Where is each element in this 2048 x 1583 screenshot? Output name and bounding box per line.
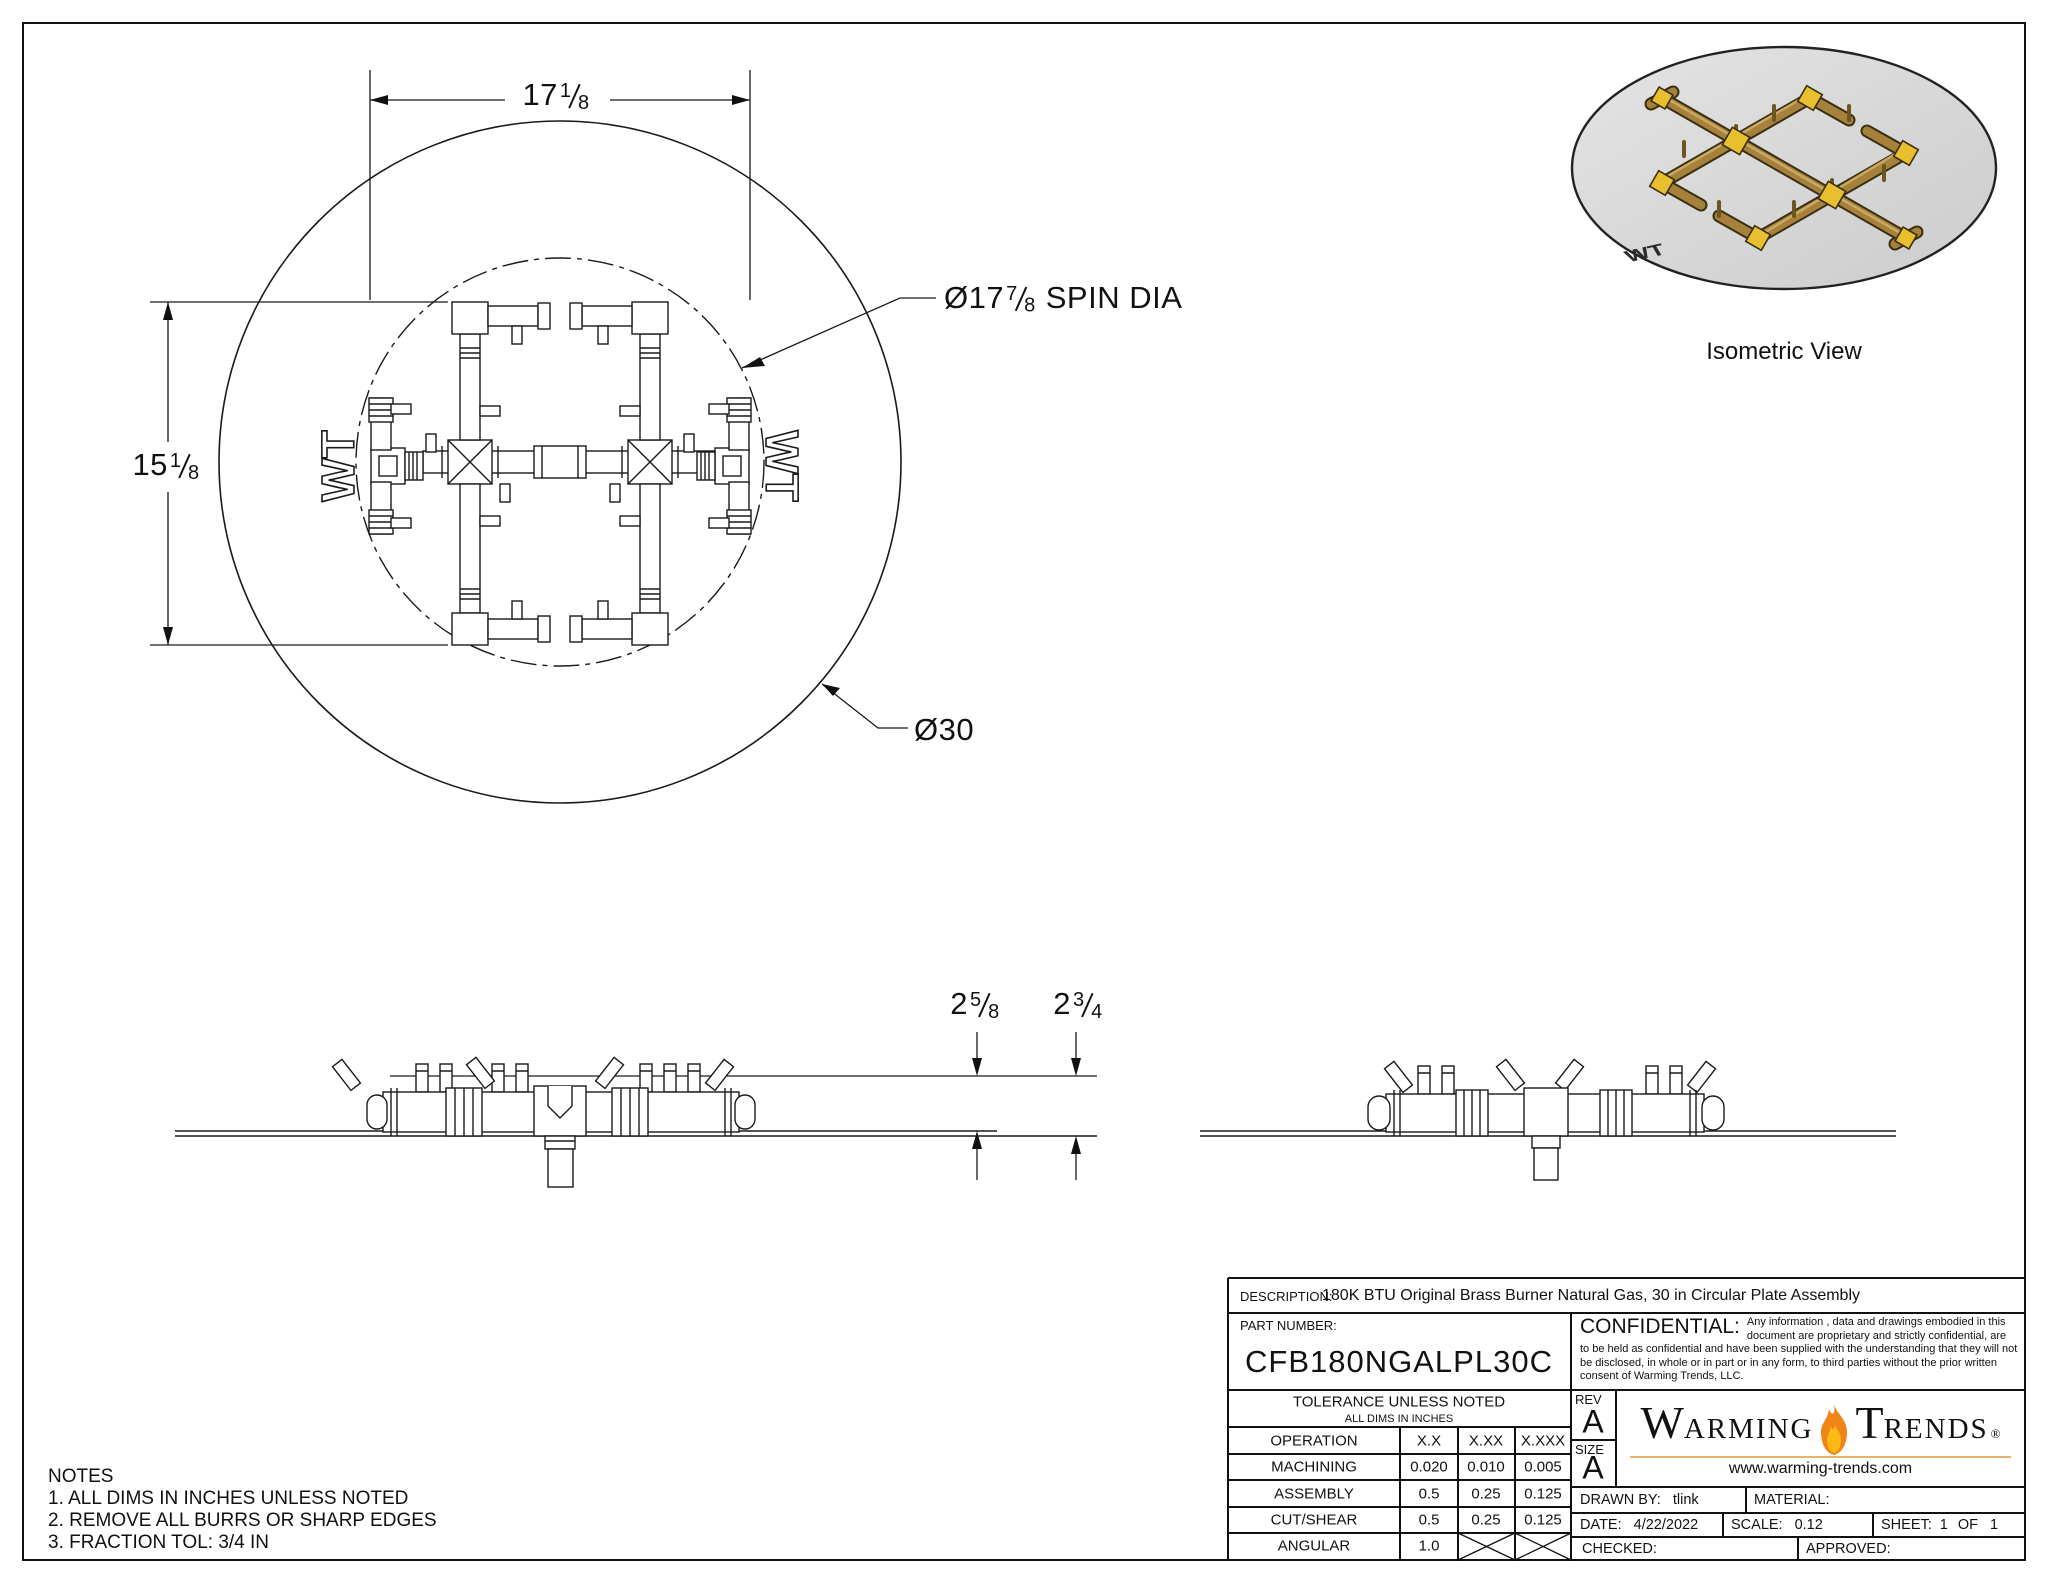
tol-cell: 0.25	[1471, 1512, 1500, 1529]
date-field: DATE:4/22/2022	[1580, 1517, 1698, 1533]
tol-cell: 0.125	[1524, 1512, 1562, 1529]
tol-cell: 1.0	[1419, 1538, 1440, 1555]
tol-cell: CUT/SHEAR	[1271, 1512, 1358, 1529]
tol-col-header: OPERATION	[1270, 1433, 1357, 1450]
confidential-label: CONFIDENTIAL:	[1580, 1316, 1740, 1338]
side-view-front	[175, 1057, 1097, 1187]
dim-width-label: 1718	[522, 77, 589, 115]
note-line: 3. FRACTION TOL: 3/4 IN	[48, 1532, 437, 1554]
burner-plan	[369, 302, 751, 645]
brand-underline	[1630, 1456, 2011, 1458]
rev-value: A	[1582, 1404, 1603, 1441]
tolerance-subtitle: ALL DIMS IN INCHES	[1345, 1413, 1453, 1425]
tol-cell: MACHINING	[1271, 1459, 1357, 1476]
part-number-value: CFB180NGALPL30C	[1245, 1344, 1553, 1380]
dim-overall-height-label: 234	[1053, 986, 1102, 1024]
drawn-by-field: DRAWN BY:tlink	[1580, 1492, 1699, 1508]
part-number-label: PART NUMBER:	[1240, 1318, 1337, 1333]
registered-mark: ®	[1991, 1426, 2001, 1442]
wt-monogram-right: WT	[756, 430, 808, 502]
confidential-box: CONFIDENTIAL: Any information , data and…	[1580, 1316, 2018, 1386]
tol-cell: 0.5	[1419, 1486, 1440, 1503]
tol-cell: 0.5	[1419, 1512, 1440, 1529]
description-label: DESCRIPTION:	[1240, 1289, 1332, 1304]
brand-logo: WARMING TRENDS ® www.warming-trends.com	[1618, 1392, 2023, 1485]
tol-col-header: X.X	[1417, 1433, 1441, 1450]
spin-dia-label: Ø1778SPIN DIA	[944, 280, 1182, 318]
description-value: 180K BTU Original Brass Burner Natural G…	[1322, 1287, 1860, 1305]
note-line: 1. ALL DIMS IN INCHES UNLESS NOTED	[48, 1488, 437, 1510]
checked-field: CHECKED:	[1582, 1541, 1669, 1557]
side-views	[175, 1032, 1896, 1187]
tol-cell: ASSEMBLY	[1274, 1486, 1354, 1503]
drawing-sheet: WT WT	[0, 0, 2048, 1583]
tolerance-title: TOLERANCE UNLESS NOTED	[1293, 1394, 1505, 1411]
plan-view: WT WT	[150, 70, 936, 803]
brand-website: www.warming-trends.com	[1618, 1460, 2023, 1478]
size-value: A	[1582, 1450, 1603, 1487]
notes-block: NOTES 1. ALL DIMS IN INCHES UNLESS NOTED…	[48, 1466, 437, 1554]
side-view-side	[1200, 1059, 1896, 1180]
tol-col-header: X.XX	[1469, 1433, 1503, 1450]
leader-plate-dia	[822, 684, 908, 728]
tol-cell: 0.010	[1467, 1459, 1505, 1476]
leader-spin-dia	[742, 298, 936, 368]
isometric-view: WT	[1572, 47, 1996, 289]
sheet-field: SHEET:1OF1	[1881, 1517, 1998, 1533]
tol-cell: 0.020	[1410, 1459, 1448, 1476]
iso-caption: Isometric View	[1706, 338, 1862, 366]
brand-wordmark: WARMING TRENDS ®	[1618, 1400, 2023, 1452]
tol-cell: ANGULAR	[1278, 1538, 1351, 1555]
dim-height-label: 1518	[132, 447, 199, 485]
wt-monogram-left: WT	[312, 430, 364, 502]
approved-field: APPROVED:	[1806, 1541, 1903, 1557]
tol-col-header: X.XXX	[1521, 1433, 1565, 1450]
flame-icon	[1819, 1404, 1849, 1456]
scale-field: SCALE:0.12	[1731, 1517, 1823, 1533]
note-line: 2. REMOVE ALL BURRS OR SHARP EDGES	[48, 1510, 437, 1532]
material-field: MATERIAL:	[1754, 1492, 1841, 1508]
tol-cell: 0.125	[1524, 1486, 1562, 1503]
notes-title: NOTES	[48, 1466, 437, 1488]
dim-height-above-label: 258	[950, 986, 999, 1024]
plate-dia-label: Ø30	[914, 712, 974, 748]
tol-cell: 0.005	[1524, 1459, 1562, 1476]
side-dim-arrows	[972, 1032, 1081, 1180]
tol-cell: 0.25	[1471, 1486, 1500, 1503]
